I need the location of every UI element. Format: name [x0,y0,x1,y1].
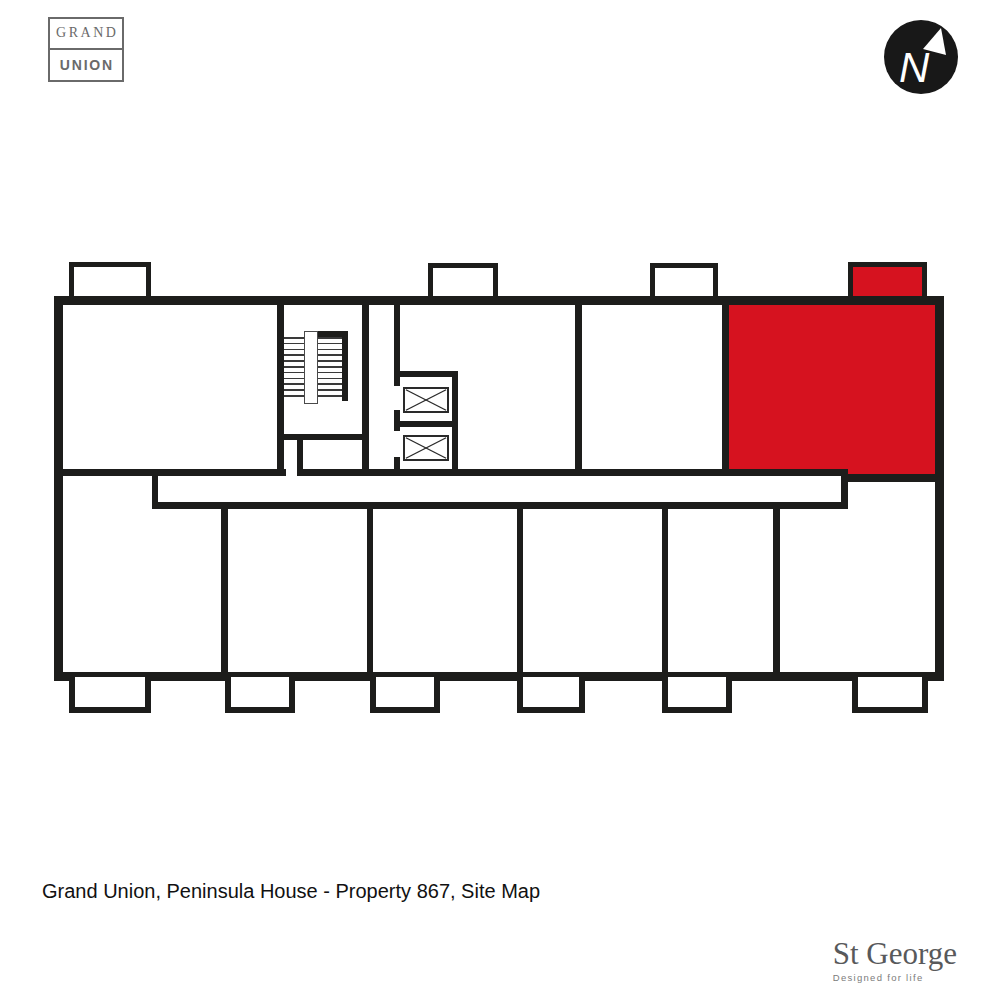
wall-stairwell-right [362,303,369,473]
wall-outer-bottom [54,672,944,681]
highlighted-unit-extension[interactable] [847,300,940,478]
wall-stair-inner-vertical [342,331,348,401]
lift-cross-icon [405,437,447,459]
wall-corridor-top-left [54,469,286,476]
wall-corridor-bottom [152,502,848,509]
wall-outer-left [54,296,63,681]
wall-lift-top [394,371,458,377]
wall-bottom-divider-2 [367,509,373,672]
grand-union-logo-line2: UNION [50,50,122,81]
page-title: Grand Union, Peninsula House - Property … [42,880,540,903]
wall-upper-divider [575,303,582,469]
grand-union-logo: GRAND UNION [48,17,124,82]
wall-bottom-divider-4 [662,509,668,672]
wall-highlighted-unit-bottom-right [847,474,937,482]
st-george-tagline: Designed for life [833,972,957,983]
lift-shaft-2 [403,435,449,461]
grand-union-logo-line1: GRAND [50,19,122,50]
compass-letter: N [899,44,930,91]
balcony-bottom-2 [225,677,295,713]
wall-outer-top [54,296,944,305]
balcony-bottom-3 [370,677,440,713]
balcony-bottom-5 [662,677,732,713]
wall-corridor-top-main [362,469,847,476]
balcony-bottom-1 [69,677,151,713]
wall-lift-middle [398,421,458,427]
north-arrow-icon: N [883,19,959,95]
balcony-bottom-6 [852,677,928,713]
wall-corridor-top-closet [298,469,362,476]
st-george-logo: St George Designed for life [833,937,957,983]
lift-shaft-1 [403,387,449,413]
balcony-bottom-4 [517,677,585,713]
wall-lift-right [452,371,458,476]
wall-stairwell-left [277,303,284,476]
wall-highlighted-unit-left [722,303,729,473]
stair-landing [304,331,318,404]
lift-cross-icon [405,389,447,411]
wall-bottom-divider-1 [221,509,228,672]
wall-bottom-divider-3 [517,509,523,672]
wall-bottom-divider-5 [773,509,780,672]
wall-outer-right [935,296,944,681]
st-george-name: St George [833,937,957,971]
